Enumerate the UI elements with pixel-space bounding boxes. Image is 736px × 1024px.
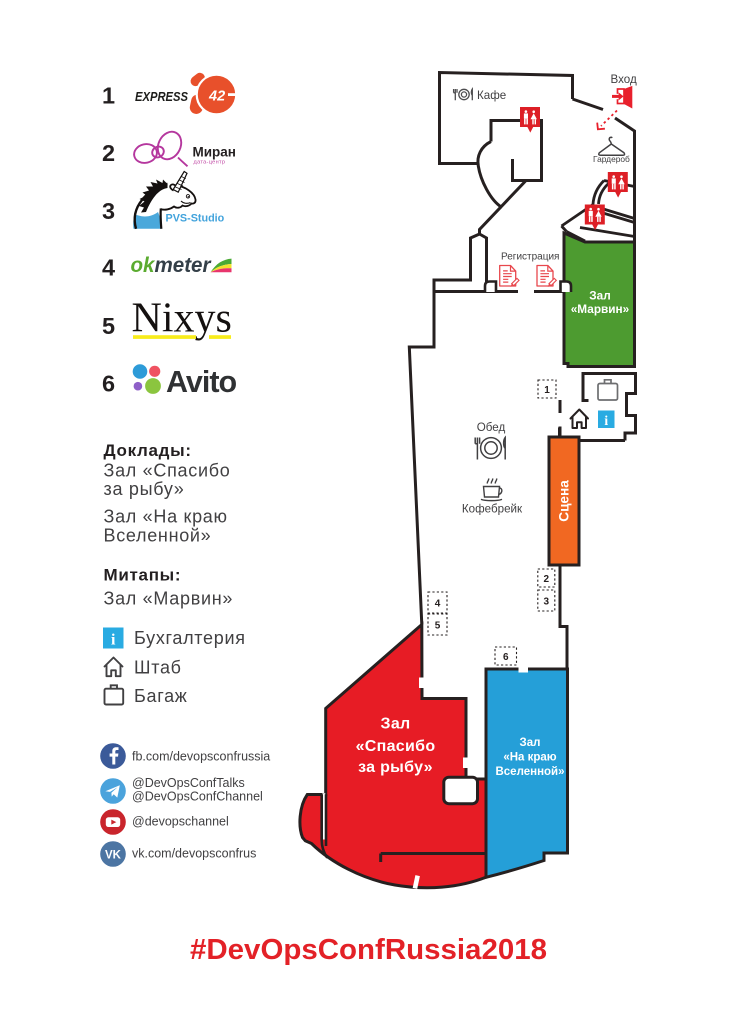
svg-text:#DevOpsConfRussia2018: #DevOpsConfRussia2018	[190, 934, 547, 966]
svg-text:Обед: Обед	[477, 421, 506, 434]
svg-text:дата-центр: дата-центр	[194, 160, 226, 166]
svg-text:okmeter: okmeter	[131, 254, 213, 277]
svg-text:6: 6	[102, 371, 115, 397]
svg-text:4: 4	[435, 599, 441, 610]
svg-text:@devopschannel: @devopschannel	[132, 815, 229, 829]
svg-text:i: i	[604, 413, 608, 428]
svg-text:3: 3	[544, 597, 550, 608]
svg-text:3: 3	[102, 198, 115, 224]
svg-text:PVS-Studio: PVS-Studio	[166, 213, 225, 225]
svg-text:1: 1	[544, 385, 550, 396]
svg-text:«Марвин»: «Марвин»	[571, 302, 630, 316]
svg-text:5: 5	[435, 621, 441, 632]
svg-text:за рыбу»: за рыбу»	[358, 759, 433, 776]
svg-text:i: i	[111, 632, 116, 649]
svg-text:@DevOpsConfChannel: @DevOpsConfChannel	[132, 790, 263, 804]
svg-text:Avito: Avito	[166, 365, 236, 399]
svg-text:Зал «Марвин»: Зал «Марвин»	[104, 589, 234, 609]
svg-text:Кафе: Кафе	[477, 89, 506, 102]
svg-text:Кофебрейк: Кофебрейк	[462, 503, 523, 516]
svg-text:Регистрация: Регистрация	[501, 252, 559, 263]
svg-text:fb.com/devopsconfrussia: fb.com/devopsconfrussia	[132, 750, 270, 764]
svg-text:4: 4	[102, 255, 115, 281]
svg-text:за рыбу»: за рыбу»	[104, 479, 185, 499]
svg-text:2: 2	[544, 574, 550, 585]
svg-text:Митапы:: Митапы:	[104, 566, 182, 585]
svg-text:Вход: Вход	[611, 73, 637, 86]
svg-text:Миран: Миран	[193, 145, 236, 160]
svg-text:42: 42	[208, 89, 225, 105]
svg-text:Бухгалтерия: Бухгалтерия	[134, 628, 246, 648]
svg-text:Штаб: Штаб	[134, 658, 182, 678]
svg-text:Багаж: Багаж	[134, 686, 188, 706]
svg-text:5: 5	[102, 313, 115, 339]
svg-text:6: 6	[503, 652, 509, 663]
svg-text:Зал «На краю: Зал «На краю	[104, 507, 228, 527]
svg-text:EXPRESS: EXPRESS	[135, 89, 188, 104]
svg-text:Зал «Спасибо: Зал «Спасибо	[104, 461, 231, 481]
svg-text:Гардероб: Гардероб	[593, 154, 630, 164]
svg-text:1: 1	[102, 83, 115, 109]
svg-text:Зал: Зал	[589, 289, 610, 303]
svg-text:Сцена: Сцена	[557, 480, 572, 522]
svg-text:VK: VK	[105, 849, 122, 861]
svg-text:2: 2	[102, 140, 115, 166]
svg-text:Зал: Зал	[520, 737, 541, 749]
svg-text:«На краю: «На краю	[503, 752, 556, 764]
svg-text:Зал: Зал	[381, 716, 411, 733]
svg-text:Nixys: Nixys	[132, 296, 232, 342]
svg-text:Вселенной»: Вселенной»	[495, 766, 564, 778]
svg-text:«Спасибо: «Спасибо	[356, 738, 436, 755]
svg-text:vk.com/devopsconfrus: vk.com/devopsconfrus	[132, 847, 256, 861]
svg-text:Доклады:: Доклады:	[104, 441, 192, 460]
svg-text:@DevOpsConfTalks: @DevOpsConfTalks	[132, 776, 245, 790]
svg-text:Вселенной»: Вселенной»	[104, 526, 212, 546]
